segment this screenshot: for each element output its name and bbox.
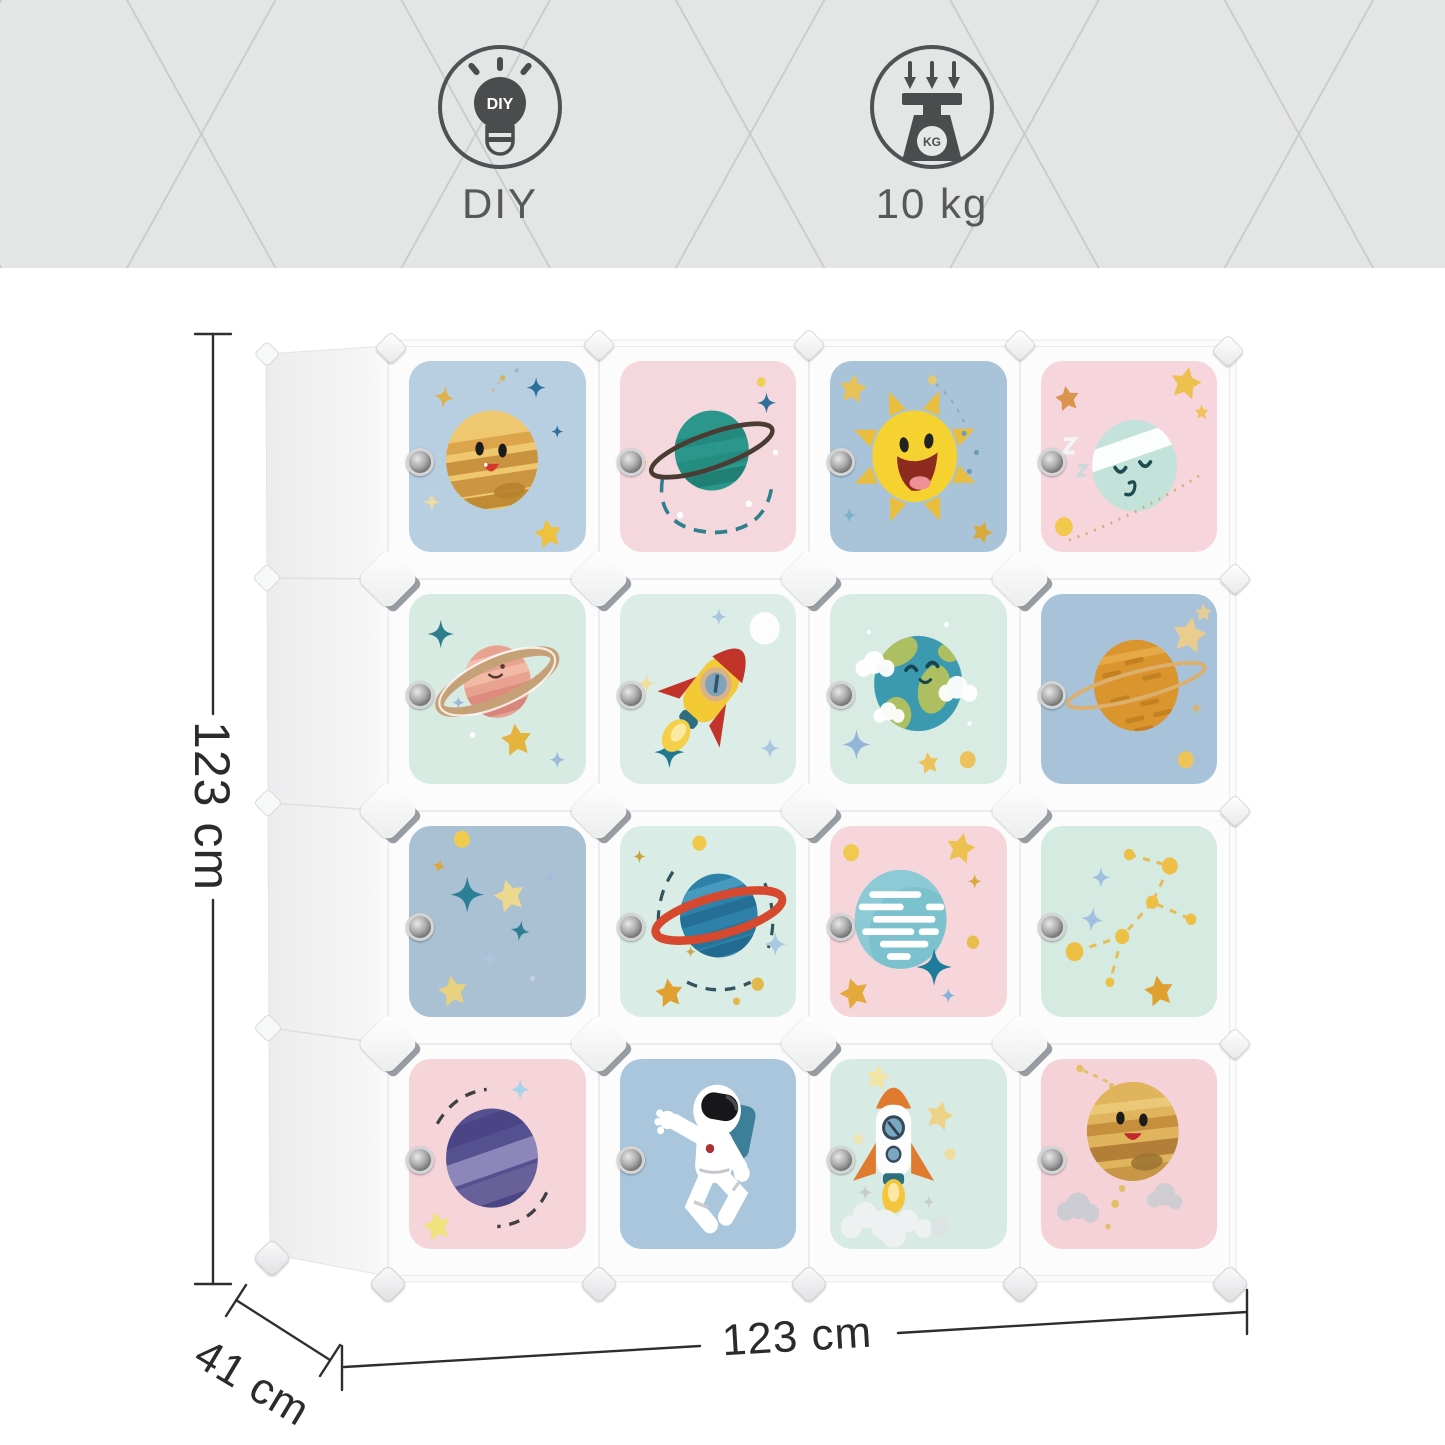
corner-connector-clip <box>365 556 411 602</box>
right-edge-connector <box>1218 794 1252 828</box>
right-edge-connector <box>1218 1027 1252 1061</box>
top-edge-connector <box>792 328 826 362</box>
top-edge-connector <box>1003 328 1037 362</box>
corner-connector-clip <box>997 788 1043 834</box>
top-right-corner-connector <box>1211 334 1245 368</box>
height-dimension-label: 123 cm <box>183 721 241 891</box>
width-dimension-label: 123 cm <box>721 1308 874 1367</box>
side-foot-connector <box>252 1238 292 1278</box>
corner-connector-clip <box>997 556 1043 602</box>
top-edge-connector <box>582 328 616 362</box>
product-infographic: DIY DIY KG 10 kg <box>0 0 1445 1445</box>
foot-connector <box>368 1264 408 1304</box>
corner-connector-clip <box>997 1021 1043 1067</box>
corner-connector-clip <box>365 1021 411 1067</box>
right-edge-connector <box>1218 562 1252 596</box>
corner-connector-clip <box>576 788 622 834</box>
top-left-corner-connector <box>374 331 408 365</box>
corner-connector-clip <box>786 788 832 834</box>
foot-connector <box>579 1264 619 1304</box>
corner-connector-clip <box>786 556 832 602</box>
foot-connector <box>789 1264 829 1304</box>
corner-connector-clip <box>576 556 622 602</box>
corner-connector-clip <box>365 788 411 834</box>
foot-connector <box>1000 1264 1040 1304</box>
corner-connector-clip <box>576 1021 622 1067</box>
corner-connector-clip <box>786 1021 832 1067</box>
foot-connector <box>1210 1264 1250 1304</box>
